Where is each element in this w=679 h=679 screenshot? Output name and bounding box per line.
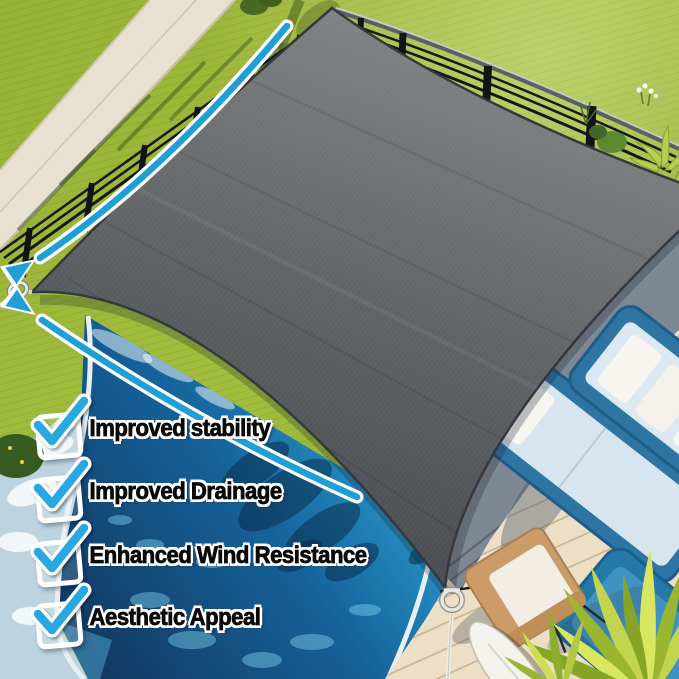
feature-item: Aesthetic Appeal xyxy=(28,594,276,642)
feature-item: Improved Drainage xyxy=(28,468,299,516)
checkbox-check-icon xyxy=(28,594,84,642)
feature-item: Improved stability xyxy=(28,405,286,453)
sun-shade-sail-product-image: Improved stability Improved Drainage Enh… xyxy=(0,0,679,679)
checkbox-check-icon xyxy=(28,468,84,516)
checkbox-check-icon xyxy=(28,532,84,580)
check-icon xyxy=(28,393,92,451)
feature-label: Enhanced Wind Resistance xyxy=(84,542,367,570)
feature-label: Aesthetic Appeal xyxy=(84,604,260,632)
feature-item: Enhanced Wind Resistance xyxy=(28,532,391,580)
check-icon xyxy=(28,456,92,514)
check-icon xyxy=(28,520,92,578)
checkbox-check-icon xyxy=(28,405,84,453)
check-icon xyxy=(28,582,92,640)
feature-label: Improved Drainage xyxy=(84,478,282,506)
feature-label: Improved stability xyxy=(84,415,270,443)
